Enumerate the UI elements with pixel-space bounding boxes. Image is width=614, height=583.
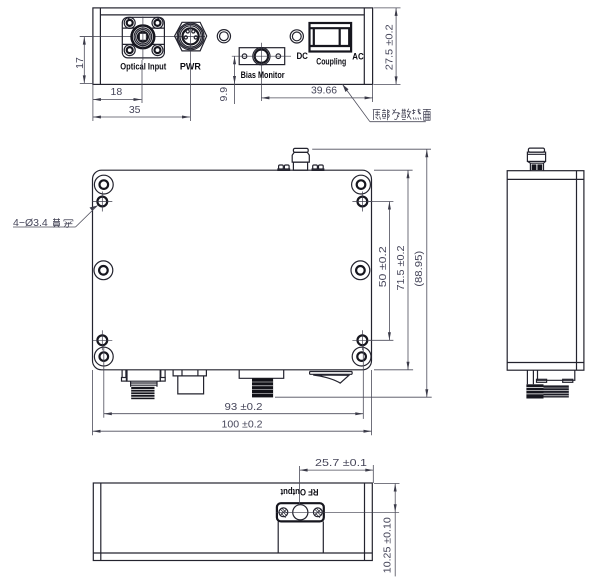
- svg-text:Optical Input: Optical Input: [120, 61, 167, 72]
- svg-text:4−Ø3.4: 4−Ø3.4: [13, 217, 48, 229]
- svg-text:Coupling: Coupling: [316, 57, 346, 68]
- svg-text:25.7 ±0.1: 25.7 ±0.1: [315, 457, 367, 469]
- svg-text:71.5 ±0.2: 71.5 ±0.2: [395, 245, 407, 290]
- svg-text:39.66: 39.66: [311, 85, 337, 97]
- svg-text:10.25 ±0.10: 10.25 ±0.10: [382, 517, 394, 573]
- svg-text:AC: AC: [352, 52, 364, 63]
- svg-text:9.9: 9.9: [218, 87, 230, 102]
- svg-text:93 ±0.2: 93 ±0.2: [225, 401, 263, 413]
- svg-text:27.5 ±0.2: 27.5 ±0.2: [384, 24, 396, 70]
- svg-text:50 ±0.2: 50 ±0.2: [377, 246, 389, 287]
- svg-text:(88.95): (88.95): [413, 251, 425, 287]
- svg-text:100 ±0.2: 100 ±0.2: [222, 419, 263, 431]
- svg-text:17: 17: [74, 57, 86, 69]
- svg-text:Bias Monitor: Bias Monitor: [241, 70, 285, 81]
- svg-text:18: 18: [111, 86, 123, 98]
- svg-text:DC: DC: [296, 51, 308, 62]
- svg-text:RF Output: RF Output: [280, 486, 319, 497]
- svg-text:35: 35: [129, 104, 141, 116]
